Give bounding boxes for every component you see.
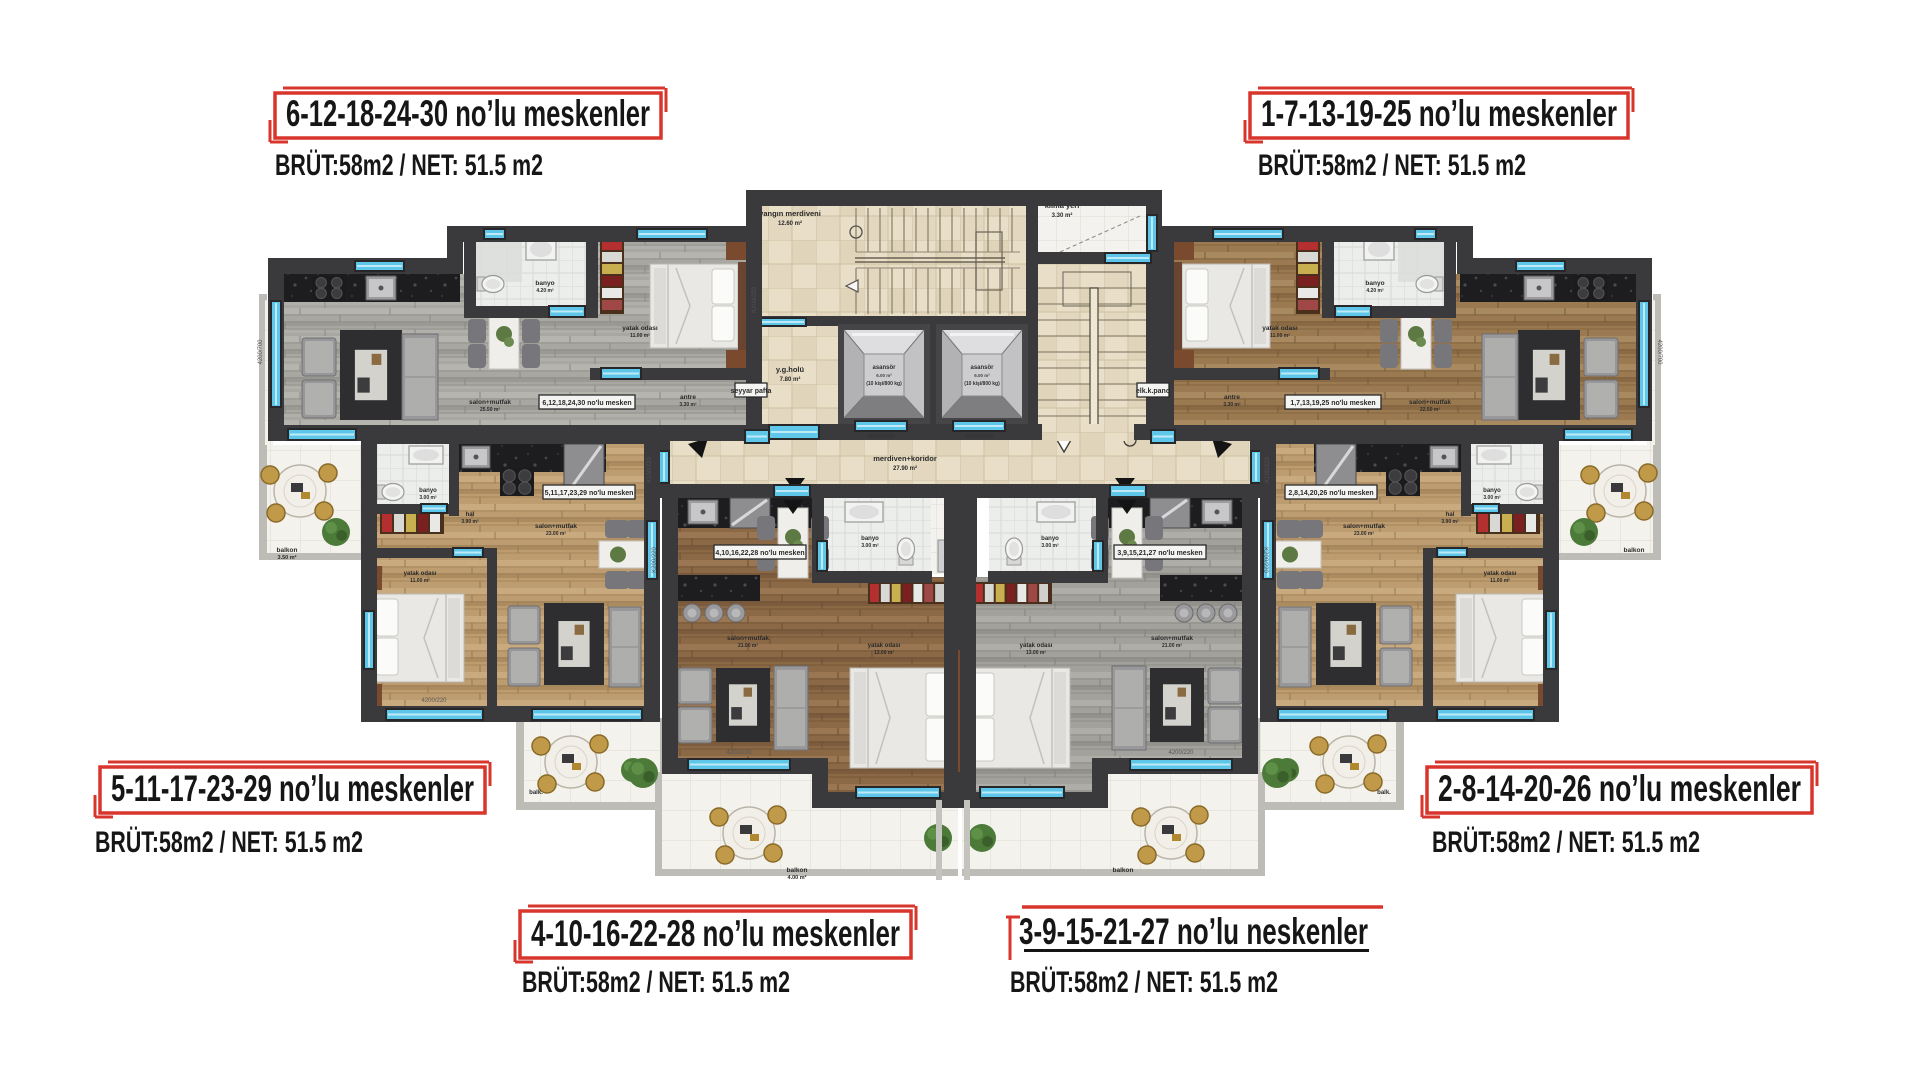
svg-text:13.00 m²: 13.00 m² xyxy=(874,650,894,656)
svg-text:11.00 m²: 11.00 m² xyxy=(630,333,650,339)
svg-text:6.00 m²: 6.00 m² xyxy=(876,373,892,378)
svg-text:K200/220: K200/220 xyxy=(752,286,758,312)
svg-text:BRÜT:58m2 / NET: 51.5 m2: BRÜT:58m2 / NET: 51.5 m2 xyxy=(1010,966,1278,999)
svg-text:3.00 m²: 3.00 m² xyxy=(861,543,879,549)
svg-text:antre: antre xyxy=(1224,394,1240,401)
svg-text:23.00 m²: 23.00 m² xyxy=(546,531,566,537)
svg-text:hal: hal xyxy=(466,512,475,518)
svg-text:3.30 m²: 3.30 m² xyxy=(679,402,697,408)
svg-text:11.00 m²: 11.00 m² xyxy=(1490,578,1510,584)
svg-text:430/232/220: 430/232/220 xyxy=(867,434,895,440)
svg-text:4,10,16,22,28 no'lu mesken: 4,10,16,22,28 no'lu mesken xyxy=(715,550,804,557)
svg-text:BRÜT:58m2 / NET: 51.5 m2: BRÜT:58m2 / NET: 51.5 m2 xyxy=(275,149,543,182)
svg-text:5,11,17,23,29 no'lu mesken: 5,11,17,23,29 no'lu mesken xyxy=(545,490,634,497)
svg-text:21.00 m²: 21.00 m² xyxy=(738,643,758,649)
svg-text:balkon: balkon xyxy=(1113,867,1134,874)
svg-text:4.00 m²: 4.00 m² xyxy=(788,874,807,881)
svg-text:banyo: banyo xyxy=(1041,536,1059,542)
svg-text:BRÜT:58m2 / NET: 51.5 m2: BRÜT:58m2 / NET: 51.5 m2 xyxy=(1258,149,1526,182)
svg-text:7.80 m²: 7.80 m² xyxy=(780,376,801,383)
svg-text:4200/220: 4200/220 xyxy=(726,750,752,756)
svg-text:yatak odası: yatak odası xyxy=(1020,643,1053,649)
svg-text:yatak odası: yatak odası xyxy=(868,643,901,649)
svg-text:salon+mutfak: salon+mutfak xyxy=(727,635,769,642)
svg-text:K100/220: K100/220 xyxy=(1265,456,1271,482)
svg-text:3.30 m²: 3.30 m² xyxy=(1223,402,1241,408)
svg-text:430/232/220: 430/232/220 xyxy=(965,434,993,440)
svg-text:3.30 m²: 3.30 m² xyxy=(1052,212,1073,219)
svg-text:elk.k.pano: elk.k.pano xyxy=(1136,388,1170,395)
svg-text:salon+mutfak: salon+mutfak xyxy=(535,523,577,530)
svg-text:3.00 m²: 3.00 m² xyxy=(1041,543,1059,549)
svg-text:2-8-14-20-26 no’lu meskenler: 2-8-14-20-26 no’lu meskenler xyxy=(1438,768,1801,809)
svg-text:banyo: banyo xyxy=(1483,488,1501,494)
svg-text:3-9-15-21-27 no’lu neskenler: 3-9-15-21-27 no’lu neskenler xyxy=(1019,911,1368,952)
svg-text:23.00 m²: 23.00 m² xyxy=(1354,531,1374,537)
svg-text:BRÜT:58m2 / NET: 51.5 m2: BRÜT:58m2 / NET: 51.5 m2 xyxy=(522,966,790,999)
svg-text:balkon: balkon xyxy=(1624,547,1645,554)
svg-text:salon+mutfak: salon+mutfak xyxy=(1343,523,1385,530)
svg-text:11.00 m²: 11.00 m² xyxy=(1270,333,1290,339)
svg-text:22.50 m²: 22.50 m² xyxy=(1420,407,1440,413)
svg-text:21.00 m²: 21.00 m² xyxy=(1162,643,1182,649)
svg-text:banyo: banyo xyxy=(1365,280,1384,287)
svg-text:balk.: balk. xyxy=(1377,790,1391,796)
svg-text:1-7-13-19-25 no’lu meskenler: 1-7-13-19-25 no’lu meskenler xyxy=(1261,93,1617,134)
svg-text:hal: hal xyxy=(1446,512,1455,518)
svg-text:BRÜT:58m2 / NET: 51.5 m2: BRÜT:58m2 / NET: 51.5 m2 xyxy=(1432,826,1700,859)
svg-text:5-11-17-23-29 no’lu meskenler: 5-11-17-23-29 no’lu meskenler xyxy=(111,768,474,809)
svg-text:3.00 m²: 3.00 m² xyxy=(1483,495,1501,501)
svg-text:salon+mutfak: salon+mutfak xyxy=(1409,399,1451,406)
svg-text:balkon: balkon xyxy=(787,867,808,874)
svg-text:yatak odası: yatak odası xyxy=(404,571,437,577)
svg-text:banyo: banyo xyxy=(861,536,879,542)
svg-text:seyyar pafta: seyyar pafta xyxy=(731,388,772,395)
svg-text:3.90 m²: 3.90 m² xyxy=(461,519,479,525)
svg-text:y.g.holü: y.g.holü xyxy=(776,365,805,374)
svg-text:6.00 m²: 6.00 m² xyxy=(974,373,990,378)
svg-text:banyo: banyo xyxy=(535,280,554,287)
svg-text:yangın merdiveni: yangın merdiveni xyxy=(759,209,821,218)
svg-text:(10 kişi/800 kg): (10 kişi/800 kg) xyxy=(866,381,902,387)
svg-text:4200/700: 4200/700 xyxy=(258,339,264,365)
svg-text:6,12,18,24,30 no'lu mesken: 6,12,18,24,30 no'lu mesken xyxy=(542,400,631,407)
svg-text:4200/220: 4200/220 xyxy=(1168,750,1194,756)
svg-text:yatak odası: yatak odası xyxy=(1262,325,1298,332)
svg-text:banyo: banyo xyxy=(419,488,437,494)
svg-text:balkon: balkon xyxy=(277,547,298,554)
svg-text:27.90 m²: 27.90 m² xyxy=(893,465,917,472)
svg-text:(10 kişi/800 kg): (10 kişi/800 kg) xyxy=(964,381,1000,387)
svg-text:13.00 m²: 13.00 m² xyxy=(1026,650,1046,656)
svg-text:4.20 m²: 4.20 m² xyxy=(536,288,554,294)
svg-text:4.20 m²: 4.20 m² xyxy=(1366,288,1384,294)
svg-text:6-12-18-24-30 no’lu meskenler: 6-12-18-24-30 no’lu meskenler xyxy=(286,93,650,134)
svg-text:asansör: asansör xyxy=(970,365,994,371)
svg-text:yatak odası: yatak odası xyxy=(1484,571,1517,577)
svg-text:2,8,14,20,26 no'lu mesken: 2,8,14,20,26 no'lu mesken xyxy=(1288,490,1373,497)
svg-text:salon+mutfak: salon+mutfak xyxy=(1151,635,1193,642)
svg-text:12.60 m²: 12.60 m² xyxy=(778,220,802,227)
svg-text:1,7,13,19,25 no'lu mesken: 1,7,13,19,25 no'lu mesken xyxy=(1290,400,1375,407)
svg-text:K200/220: K200/220 xyxy=(652,546,658,572)
svg-text:11.00 m²: 11.00 m² xyxy=(410,578,430,584)
svg-text:asansör: asansör xyxy=(872,365,896,371)
svg-text:3.50 m²: 3.50 m² xyxy=(278,554,297,561)
svg-text:salon+mutfak: salon+mutfak xyxy=(469,399,511,406)
svg-text:yatak odası: yatak odası xyxy=(622,325,658,332)
svg-text:3.90 m²: 3.90 m² xyxy=(1441,519,1459,525)
svg-text:3.00 m²: 3.00 m² xyxy=(419,495,437,501)
svg-text:antre: antre xyxy=(680,394,696,401)
svg-text:4200/700: 4200/700 xyxy=(1656,339,1662,365)
svg-text:BRÜT:58m2 / NET: 51.5 m2: BRÜT:58m2 / NET: 51.5 m2 xyxy=(95,826,363,859)
svg-text:4200/220: 4200/220 xyxy=(421,698,447,704)
svg-text:4-10-16-22-28 no’lu meskenler: 4-10-16-22-28 no’lu meskenler xyxy=(531,913,900,954)
svg-text:K200/220: K200/220 xyxy=(1262,547,1268,573)
svg-text:K100/220: K100/220 xyxy=(647,456,653,482)
svg-text:balk.: balk. xyxy=(529,790,543,796)
svg-text:merdiven+koridor: merdiven+koridor xyxy=(873,454,937,463)
svg-text:25.50 m²: 25.50 m² xyxy=(480,407,500,413)
svg-text:3,9,15,21,27 no'lu mesken: 3,9,15,21,27 no'lu mesken xyxy=(1117,550,1202,557)
